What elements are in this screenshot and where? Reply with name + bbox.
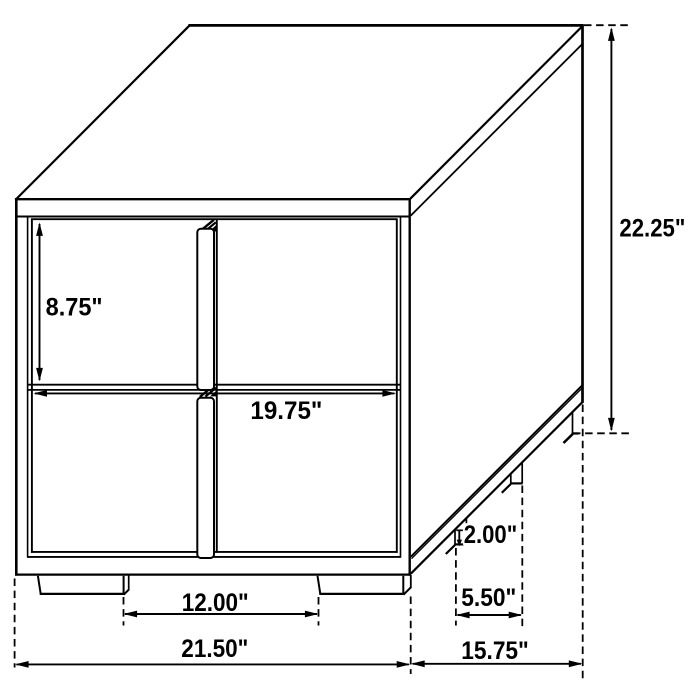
svg-text:8.75": 8.75"	[46, 294, 103, 322]
svg-text:5.50": 5.50"	[461, 584, 516, 612]
svg-text:12.00": 12.00"	[182, 589, 249, 617]
svg-text:22.25": 22.25"	[619, 215, 685, 243]
svg-text:15.75": 15.75"	[461, 637, 529, 665]
svg-text:19.75": 19.75"	[250, 397, 322, 425]
svg-text:21.50": 21.50"	[181, 635, 248, 663]
svg-text:2.00": 2.00"	[464, 521, 518, 549]
